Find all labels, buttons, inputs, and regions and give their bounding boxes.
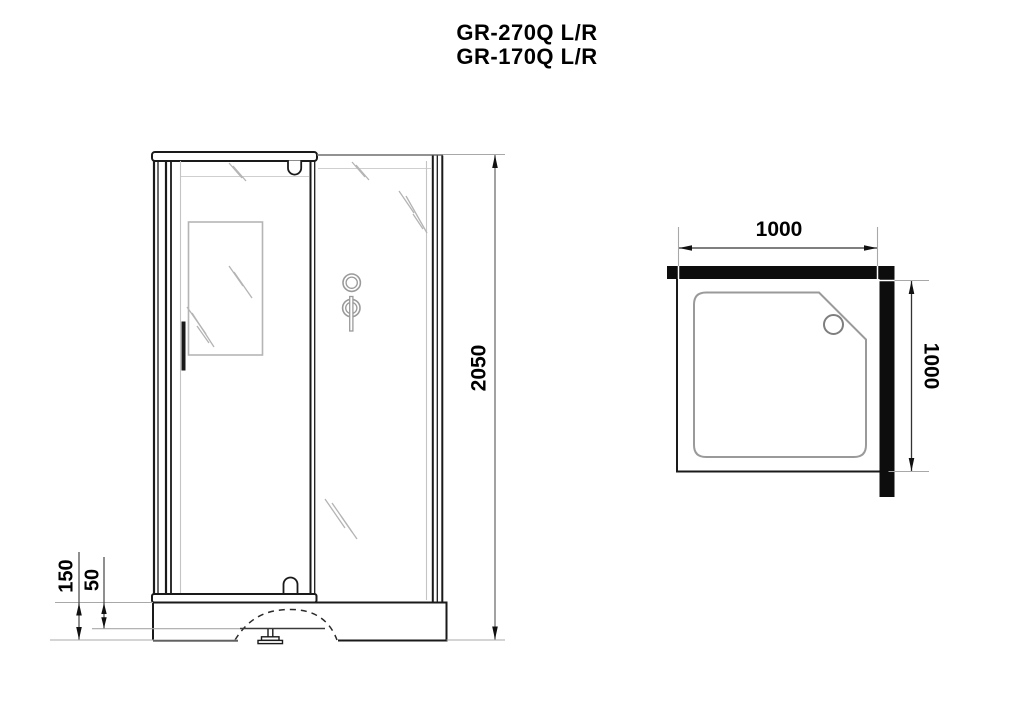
top-rail	[152, 152, 317, 161]
valve-lever	[350, 297, 353, 332]
lower-roller-bracket	[284, 578, 298, 595]
tray-outline	[153, 603, 447, 641]
drain-circle	[824, 315, 843, 334]
front-elevation-view	[50, 152, 505, 644]
drawing-linework	[0, 0, 1024, 723]
arrowhead-down	[76, 627, 82, 640]
arrowhead-up	[909, 281, 915, 294]
arrowhead-left	[679, 245, 692, 251]
arrowhead-right	[864, 245, 877, 251]
plan-right-wall-bar	[880, 266, 895, 497]
right-frame-profile	[433, 156, 443, 603]
tray-apron-dashed-arc	[235, 610, 337, 641]
middle-frame-post	[311, 161, 315, 594]
dim-label-tray-150: 150	[56, 536, 78, 617]
model-title-line2: GR-170Q L/R	[377, 45, 677, 69]
shower-tray-front	[153, 603, 447, 641]
bottom-rail	[152, 594, 317, 603]
shower-valve	[343, 274, 361, 331]
dimension-1000-depth	[909, 281, 915, 471]
glass-reflection-hatches	[187, 162, 427, 539]
arrowhead-down	[909, 458, 915, 471]
dim-label-height-2050: 2050	[469, 328, 491, 409]
dim-label-width-1000: 1000	[739, 219, 819, 241]
left-frame-profile	[154, 160, 171, 594]
adjustable-foot	[258, 629, 283, 644]
dimension-2050	[492, 155, 498, 640]
dimension-1000-width	[679, 245, 877, 251]
arrowhead-up	[492, 155, 498, 168]
arrowhead-down	[492, 627, 498, 640]
dim-label-depth-1000: 1000	[920, 326, 942, 407]
valve-upper-ring-inner	[346, 277, 357, 288]
plan-top-wall-bar	[667, 266, 894, 279]
model-title-line1: GR-270Q L/R	[377, 21, 677, 45]
upper-roller-bracket	[288, 161, 301, 175]
dim-label-tray-50: 50	[82, 540, 104, 621]
technical-drawing-page: GR-270Q L/R GR-170Q L/R 1000 1000 2050 1…	[0, 0, 1024, 723]
top-plan-view	[667, 227, 929, 497]
door-handle	[182, 322, 186, 371]
door-mirror	[189, 222, 263, 355]
